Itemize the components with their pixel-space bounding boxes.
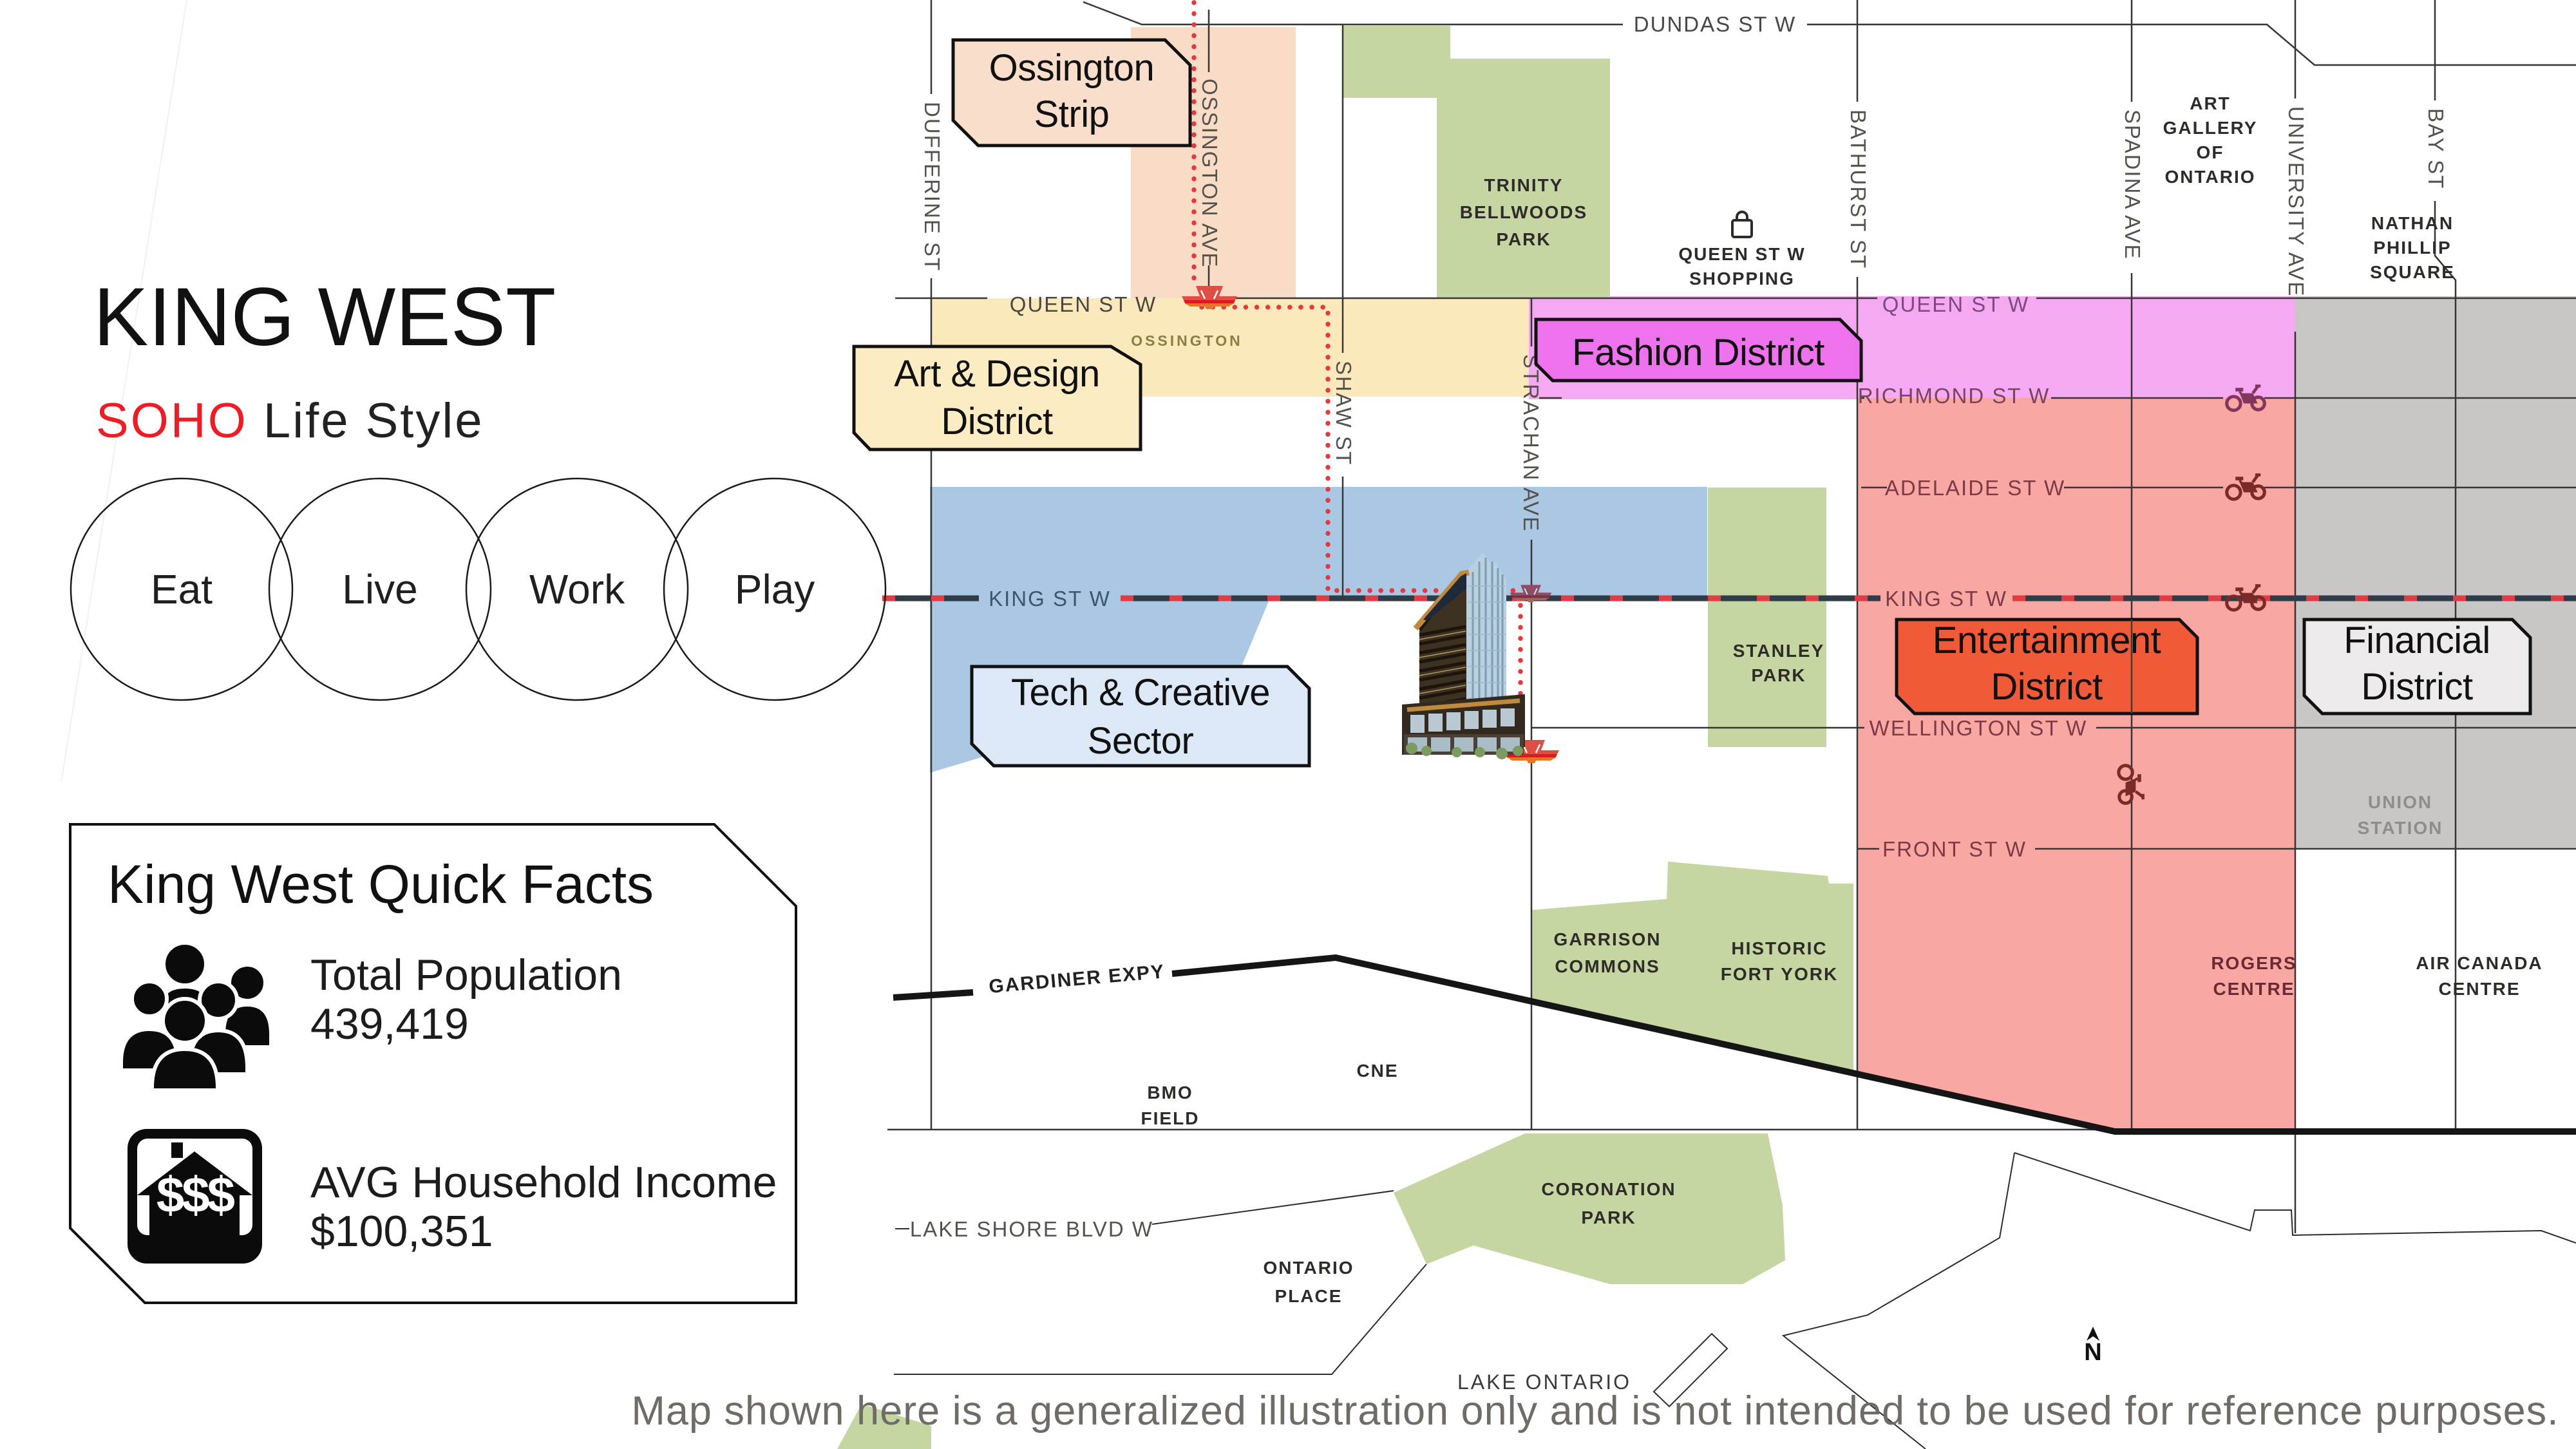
svg-text:SHAW ST: SHAW ST bbox=[1332, 361, 1356, 466]
svg-text:Total Population: Total Population bbox=[310, 951, 622, 999]
svg-text:BATHURST ST: BATHURST ST bbox=[1846, 109, 1870, 269]
svg-text:DUNDAS ST W: DUNDAS ST W bbox=[1634, 12, 1796, 36]
svg-text:Financial: Financial bbox=[2344, 620, 2490, 661]
svg-text:SPADINA AVE: SPADINA AVE bbox=[2121, 109, 2145, 260]
svg-text:DUFFERINE ST: DUFFERINE ST bbox=[920, 102, 944, 272]
svg-text:District: District bbox=[941, 401, 1053, 442]
svg-text:STANLEY: STANLEY bbox=[1733, 641, 1825, 661]
svg-text:FRONT ST W: FRONT ST W bbox=[1882, 837, 2027, 861]
svg-text:$100,351: $100,351 bbox=[310, 1207, 493, 1256]
svg-text:NATHAN: NATHAN bbox=[2371, 213, 2454, 233]
svg-text:UNIVERSITY AVE: UNIVERSITY AVE bbox=[2284, 106, 2308, 297]
svg-text:STATION: STATION bbox=[2358, 818, 2443, 838]
svg-text:TRINITY: TRINITY bbox=[1484, 175, 1564, 195]
svg-text:PLACE: PLACE bbox=[1275, 1286, 1343, 1306]
svg-text:SQUARE: SQUARE bbox=[2370, 262, 2455, 282]
svg-text:QUEEN ST W: QUEEN ST W bbox=[1010, 292, 1157, 316]
svg-text:OSSINGTON AVE: OSSINGTON AVE bbox=[1198, 79, 1222, 268]
svg-text:FIELD: FIELD bbox=[1141, 1108, 1200, 1128]
svg-text:KING ST W: KING ST W bbox=[1885, 587, 2007, 611]
svg-text:Work: Work bbox=[529, 566, 625, 612]
svg-text:KING WEST: KING WEST bbox=[93, 271, 556, 363]
svg-text:CORONATION: CORONATION bbox=[1541, 1179, 1676, 1199]
svg-text:BELLWOODS: BELLWOODS bbox=[1460, 202, 1587, 222]
svg-text:CNE: CNE bbox=[1356, 1061, 1398, 1081]
svg-text:PARK: PARK bbox=[1751, 665, 1806, 685]
svg-text:RICHMOND ST W: RICHMOND ST W bbox=[1858, 384, 2050, 408]
svg-text:Sector: Sector bbox=[1088, 720, 1194, 762]
svg-text:OF: OF bbox=[2197, 142, 2224, 162]
svg-text:QUEEN ST W: QUEEN ST W bbox=[1678, 244, 1805, 264]
svg-text:Fashion District: Fashion District bbox=[1572, 332, 1824, 374]
svg-text:PHILLIP: PHILLIP bbox=[2373, 238, 2451, 258]
svg-text:Live: Live bbox=[342, 566, 417, 612]
svg-text:COMMONS: COMMONS bbox=[1555, 956, 1660, 976]
svg-text:Eat: Eat bbox=[151, 566, 213, 612]
svg-text:CENTRE: CENTRE bbox=[2438, 979, 2520, 999]
svg-text:FORT YORK: FORT YORK bbox=[1721, 964, 1838, 984]
svg-text:SOHO Life Style: SOHO Life Style bbox=[96, 393, 484, 448]
svg-text:CENTRE: CENTRE bbox=[2213, 979, 2295, 999]
svg-text:ONTARIO: ONTARIO bbox=[1263, 1258, 1354, 1278]
svg-text:STRACHAN AVE: STRACHAN AVE bbox=[1519, 354, 1543, 532]
svg-text:LAKE SHORE BLVD W: LAKE SHORE BLVD W bbox=[910, 1217, 1153, 1241]
svg-text:PARK: PARK bbox=[1581, 1207, 1636, 1227]
svg-text:439,419: 439,419 bbox=[310, 999, 469, 1048]
svg-text:QUEEN ST W: QUEEN ST W bbox=[1882, 292, 2029, 316]
svg-text:$$$: $$$ bbox=[156, 1166, 235, 1223]
svg-text:BAY ST: BAY ST bbox=[2424, 108, 2448, 189]
svg-text:ROGERS: ROGERS bbox=[2211, 953, 2297, 973]
svg-text:GARRISON: GARRISON bbox=[1554, 929, 1662, 949]
svg-text:Ossington: Ossington bbox=[989, 47, 1155, 89]
svg-text:Map shown here is a generalize: Map shown here is a generalized illustra… bbox=[631, 1388, 2559, 1434]
svg-text:KING ST W: KING ST W bbox=[989, 587, 1111, 611]
svg-text:HISTORIC: HISTORIC bbox=[1731, 938, 1827, 958]
svg-text:Play: Play bbox=[735, 566, 815, 612]
svg-text:N: N bbox=[2084, 1339, 2101, 1366]
svg-text:ADELAIDE ST W: ADELAIDE ST W bbox=[1885, 476, 2065, 500]
svg-text:BMO: BMO bbox=[1147, 1083, 1193, 1103]
svg-text:UNION: UNION bbox=[2368, 792, 2432, 812]
svg-text:Entertainment: Entertainment bbox=[1933, 620, 2161, 661]
svg-text:Tech & Creative: Tech & Creative bbox=[1011, 672, 1270, 714]
svg-text:District: District bbox=[2361, 666, 2473, 708]
svg-text:ONTARIO: ONTARIO bbox=[2164, 167, 2255, 187]
svg-text:District: District bbox=[1991, 666, 2103, 708]
svg-text:ART: ART bbox=[2190, 93, 2231, 113]
svg-text:Art & Design: Art & Design bbox=[894, 353, 1100, 395]
svg-text:WELLINGTON ST W: WELLINGTON ST W bbox=[1870, 716, 2088, 740]
svg-text:AVG Household Income: AVG Household Income bbox=[310, 1158, 777, 1207]
svg-text:GALLERY: GALLERY bbox=[2163, 118, 2258, 138]
svg-text:AIR CANADA: AIR CANADA bbox=[2416, 953, 2543, 973]
svg-text:Strip: Strip bbox=[1034, 93, 1110, 135]
svg-text:SHOPPING: SHOPPING bbox=[1689, 269, 1795, 289]
svg-text:King West Quick Facts: King West Quick Facts bbox=[108, 854, 654, 914]
svg-text:OSSINGTON: OSSINGTON bbox=[1131, 332, 1243, 349]
svg-text:PARK: PARK bbox=[1496, 229, 1551, 249]
